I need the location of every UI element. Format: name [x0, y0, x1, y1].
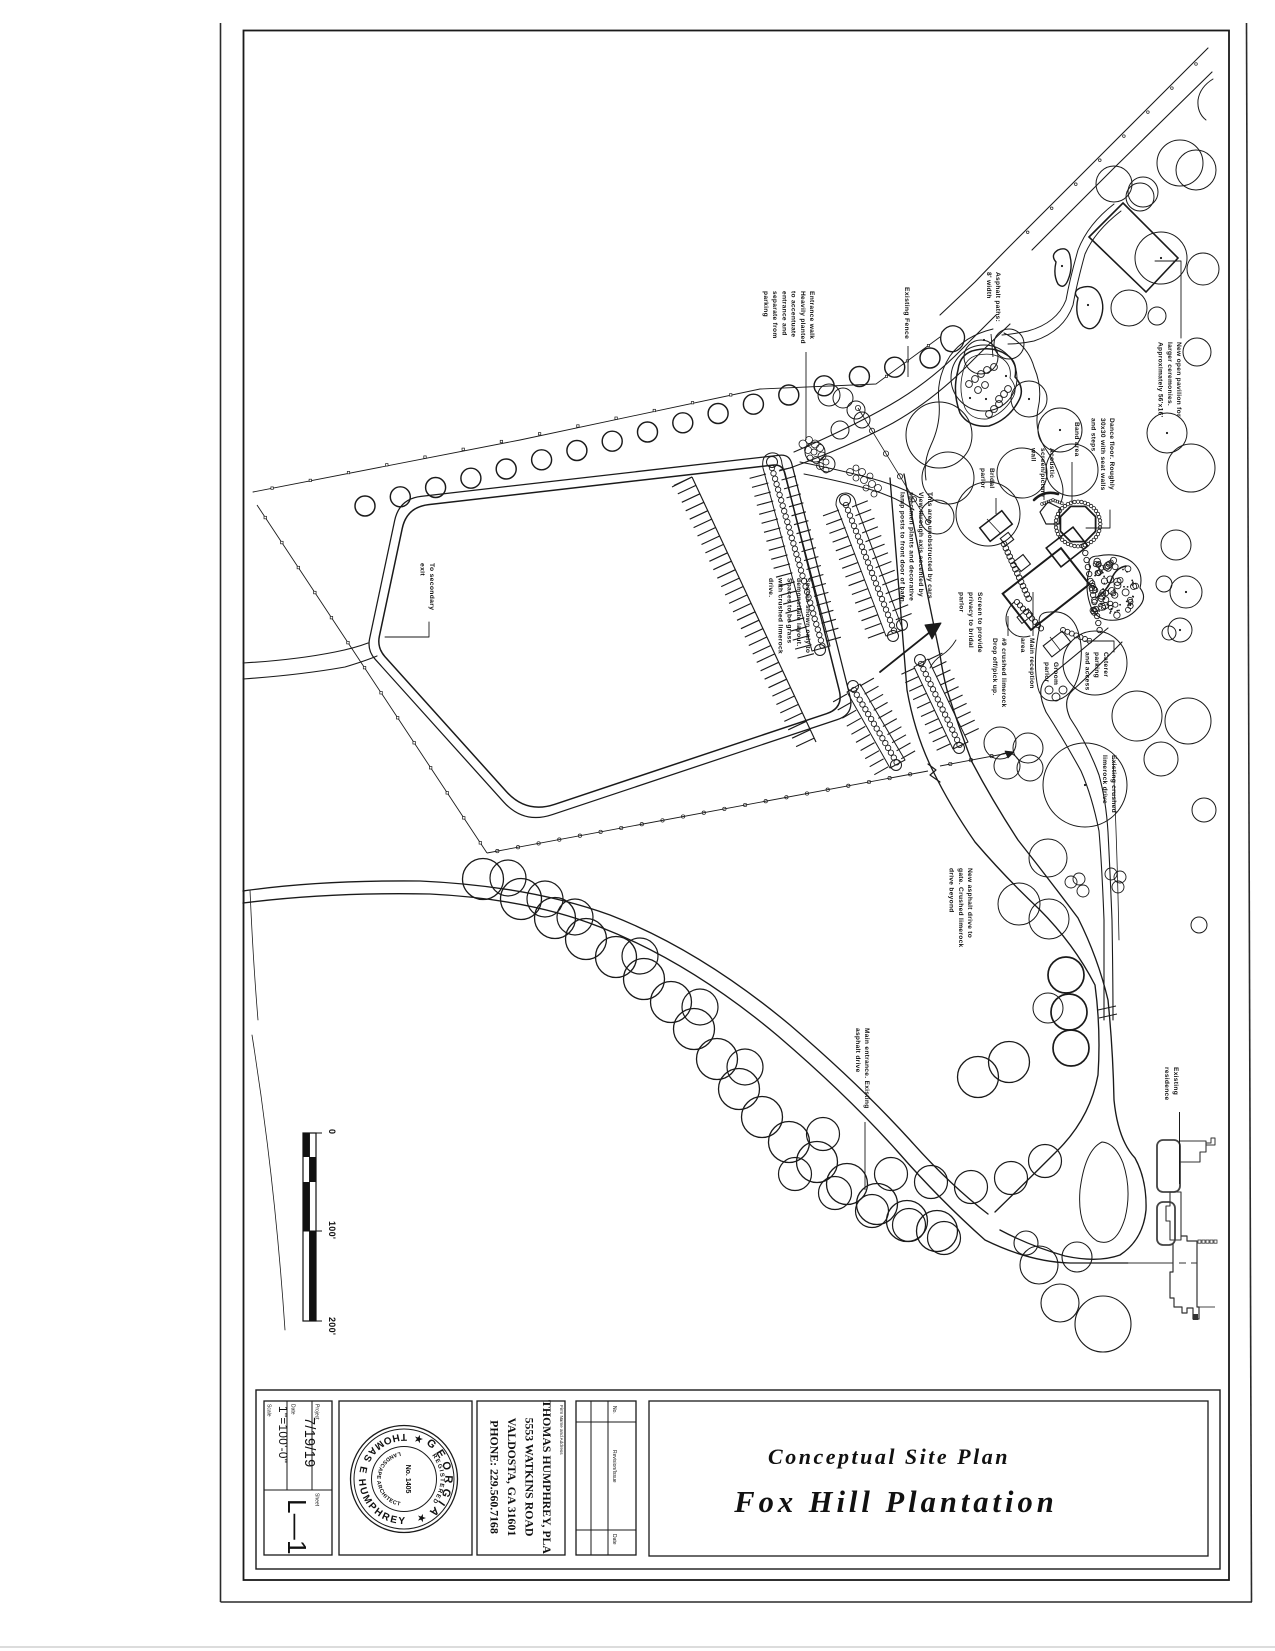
svg-text:This area unobstructed by cars: This area unobstructed by cars.: [926, 492, 933, 601]
svg-text:demonstrate layout.: demonstrate layout.: [795, 578, 802, 646]
svg-text:privacy to bridal: privacy to bridal: [967, 592, 974, 648]
svg-text:PHONE: 229.560.7168: PHONE: 229.560.7168: [488, 1420, 502, 1534]
svg-text:separate from: separate from: [771, 291, 778, 339]
svg-text:asphalt drive: asphalt drive: [854, 1028, 861, 1073]
svg-text:to accentuate: to accentuate: [790, 291, 797, 337]
svg-text:1"=100'-0": 1"=100'-0": [276, 1406, 290, 1463]
svg-text:Approximately 56'x16': Approximately 56'x16': [1157, 342, 1164, 418]
svg-text:wall: wall: [1030, 447, 1037, 462]
svg-text:residence: residence: [1163, 1067, 1170, 1101]
svg-text:Existing: Existing: [1172, 1067, 1179, 1095]
svg-text:and steps: and steps: [1090, 418, 1097, 452]
svg-text:Acoustic: Acoustic: [1048, 448, 1055, 478]
svg-text:No.: No.: [611, 1406, 617, 1414]
svg-text:Existing Fence: Existing Fence: [903, 287, 910, 339]
svg-text:Band area: Band area: [1073, 422, 1080, 457]
svg-text:parlor: parlor: [979, 468, 986, 489]
svg-text:200': 200': [327, 1317, 337, 1335]
svg-text:Heavily planted: Heavily planted: [799, 291, 806, 344]
svg-text:New asphalt drive to: New asphalt drive to: [966, 868, 973, 938]
svg-text:exit: exit: [419, 563, 426, 576]
svg-text:VALDOSTA, GA 31601: VALDOSTA, GA 31601: [505, 1418, 519, 1537]
svg-text:drive beyond: drive beyond: [948, 868, 955, 913]
svg-text:parking: parking: [1093, 652, 1100, 678]
svg-text:Date: Date: [290, 1404, 296, 1415]
svg-text:and access: and access: [1084, 652, 1091, 691]
svg-text:Spaces to be grass: Spaces to be grass: [786, 578, 793, 644]
svg-text:Asphalt paths:: Asphalt paths:: [994, 272, 1001, 322]
svg-text:THOMAS HUMPHREY, PLA: THOMAS HUMPHREY, PLA: [540, 1400, 554, 1554]
svg-text:★: ★: [412, 1434, 424, 1444]
svg-text:Drop off/pick up.: Drop off/pick up.: [991, 638, 998, 695]
svg-text:Spaces shown only to: Spaces shown only to: [804, 578, 811, 653]
svg-text:No. 1405: No. 1405: [404, 1465, 411, 1494]
svg-text:Screen to provide: Screen to provide: [976, 592, 983, 653]
svg-text:entrance and: entrance and: [780, 291, 787, 336]
svg-text:100': 100': [327, 1221, 337, 1239]
svg-text:parking: parking: [762, 291, 769, 317]
svg-text:Groom: Groom: [1052, 662, 1059, 685]
svg-text:Bridal: Bridal: [988, 468, 995, 489]
svg-text:L—1: L—1: [282, 1499, 312, 1555]
svg-text:★: ★: [415, 1513, 427, 1523]
svg-text:Sheet: Sheet: [314, 1493, 320, 1507]
svg-text:parlor: parlor: [1043, 662, 1050, 683]
svg-text:screen/picture: screen/picture: [1039, 448, 1046, 497]
svg-text:Firm Name and Address: Firm Name and Address: [559, 1405, 564, 1455]
svg-text:Fox Hill Plantation: Fox Hill Plantation: [733, 1485, 1057, 1519]
svg-text:0: 0: [327, 1129, 337, 1134]
svg-text:Entrance walk: Entrance walk: [808, 291, 815, 339]
svg-text:area: area: [1019, 638, 1026, 653]
svg-text:Scale: Scale: [266, 1404, 272, 1417]
svg-text:Main entrance. Existing: Main entrance. Existing: [863, 1028, 870, 1109]
svg-text:Date: Date: [611, 1534, 617, 1545]
svg-text:30x30 with seat walls: 30x30 with seat walls: [1099, 418, 1106, 491]
svg-text:larger ceremonies.: larger ceremonies.: [1166, 342, 1173, 406]
svg-text:8' width: 8' width: [985, 272, 992, 299]
svg-text:parlor: parlor: [958, 592, 965, 613]
svg-text:Project: Project: [314, 1404, 320, 1420]
svg-text:Revision/Issue: Revision/Issue: [611, 1450, 617, 1483]
svg-text:7/19/19: 7/19/19: [301, 1417, 317, 1467]
svg-text:Caterer: Caterer: [1102, 652, 1109, 677]
svg-text:drive.: drive.: [767, 578, 774, 597]
svg-text:New open pavilion for: New open pavilion for: [1175, 342, 1182, 417]
svg-text:Conceptual Site Plan: Conceptual Site Plan: [768, 1444, 1010, 1469]
svg-text:with crushed limerock: with crushed limerock: [776, 577, 783, 654]
svg-text:Main reception: Main reception: [1028, 638, 1035, 689]
svg-text:5553 WATKINS ROAD: 5553 WATKINS ROAD: [523, 1418, 537, 1537]
svg-text:lamp posts to front door of ba: lamp posts to front door of barn.: [898, 492, 905, 604]
svg-text:Dance floor. Roughly: Dance floor. Roughly: [1108, 418, 1115, 490]
svg-text:gate. Crushed limerock: gate. Crushed limerock: [957, 868, 964, 948]
svg-text:To secondary: To secondary: [428, 563, 435, 610]
svg-text:#9 crushed limerock: #9 crushed limerock: [1000, 638, 1007, 708]
